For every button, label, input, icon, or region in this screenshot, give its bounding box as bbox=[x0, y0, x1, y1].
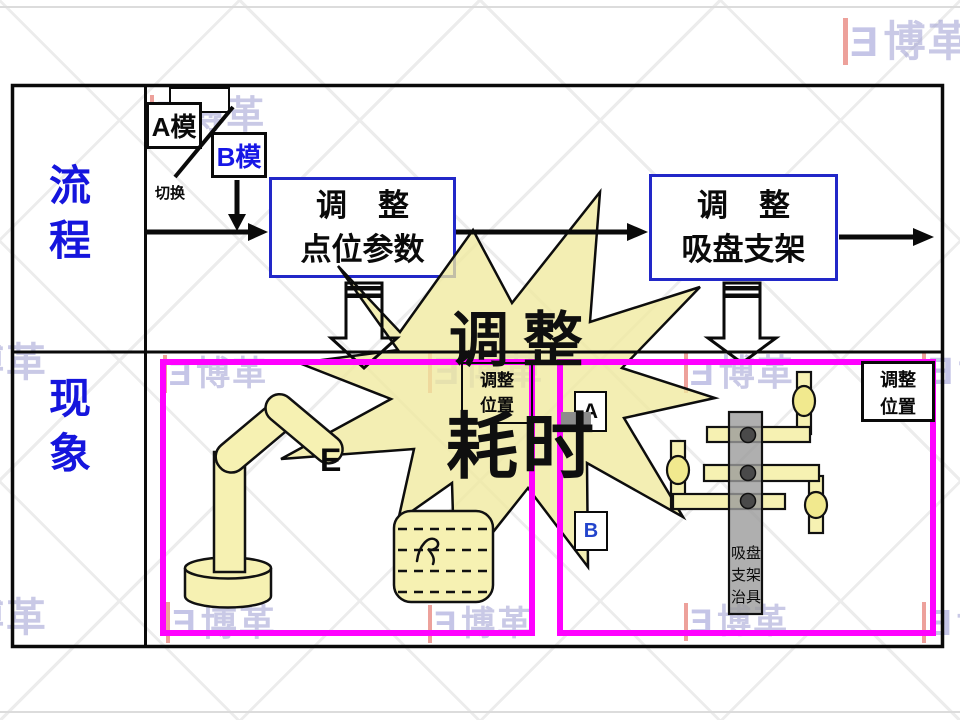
callout-right-line1: 调整 bbox=[864, 367, 932, 394]
callout-right-line2: 位置 bbox=[864, 394, 932, 421]
jig-label-line1: 吸盘 bbox=[727, 543, 765, 565]
jig-label-line2: 支架 bbox=[727, 565, 765, 587]
flow-arrow-1 bbox=[147, 223, 268, 241]
flow-arrow-3 bbox=[839, 228, 934, 246]
jig-column-label: 吸盘 支架 治具 bbox=[727, 543, 765, 609]
effector-mark: E bbox=[320, 442, 341, 479]
jig-label-line3: 治具 bbox=[727, 587, 765, 609]
marker-b-label: B bbox=[584, 520, 598, 543]
burst-text-line1: 调整 bbox=[418, 292, 628, 379]
mode-slash bbox=[175, 107, 233, 177]
flow-arrow-2 bbox=[456, 223, 648, 241]
burst-text-line2: 耗时 bbox=[406, 388, 638, 493]
slide: Ǝ博革 Ǝ博革 Ǝ博革 Ǝ博革 Ǝ博革 Ǝ博革 Ǝ博革 Ǝ博革 Ǝ博革 Ǝ博革 … bbox=[0, 0, 960, 720]
mode-down-arrow bbox=[228, 180, 246, 231]
marker-b-box: B bbox=[574, 511, 608, 551]
callout-adjust-position-right: 调整 位置 bbox=[861, 361, 935, 422]
